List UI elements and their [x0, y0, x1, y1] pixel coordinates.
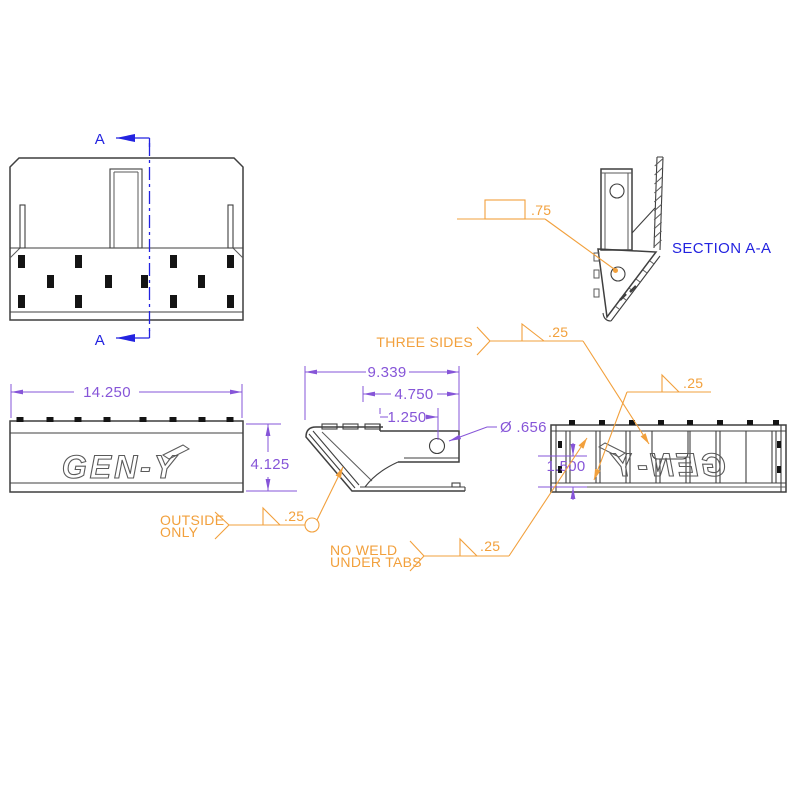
- side-view: [306, 424, 465, 491]
- center-slot: [110, 169, 142, 248]
- front-logo: GEN-Y: [62, 445, 189, 485]
- dim-hole-diameter: Ø .656: [449, 419, 547, 441]
- dim-overall-width-text: 14.250: [83, 384, 131, 401]
- fillet-weld-symbol: [263, 508, 280, 525]
- fillet-weld-symbol: [522, 324, 544, 341]
- three-sides-size: .25: [548, 324, 568, 340]
- upper-hole: [610, 184, 624, 198]
- section-marker-top: A: [95, 131, 105, 148]
- logo-text: GEN-Y: [62, 449, 178, 485]
- left-slot: [20, 205, 25, 248]
- fillet-weld-symbol: [662, 375, 679, 392]
- lower-hole: [611, 267, 625, 281]
- dim-overall-height-text: 4.125: [250, 456, 289, 473]
- dim-hole-offset: 1.250: [380, 408, 438, 440]
- top-view: [10, 158, 243, 320]
- no-weld-size: .25: [480, 538, 500, 554]
- logo-text-mirrored: GEN-Y: [610, 447, 726, 483]
- no-weld-note-line2: UNDER TABS: [330, 554, 422, 570]
- dim-arm-length: 4.750: [363, 386, 459, 403]
- back-logo-mirrored: GEN-Y: [599, 443, 726, 483]
- dim-arm-length-text: 4.750: [394, 386, 433, 403]
- drawing-canvas: A A SECTION A-A .75: [0, 0, 800, 800]
- dim-profile-length-text: 9.339: [367, 364, 406, 381]
- plug-weld-callout: .75: [457, 200, 618, 273]
- section-aa-view: SECTION A-A: [594, 157, 771, 321]
- dim-step-height-text: 1.500: [546, 458, 585, 475]
- engineering-drawing: A A SECTION A-A .75: [0, 0, 800, 800]
- front-view: GEN-Y: [10, 417, 243, 492]
- weld-all-around-symbol: [305, 518, 319, 532]
- three-sides-note: THREE SIDES: [376, 334, 473, 350]
- dim-overall-width: 14.250: [11, 384, 242, 418]
- dim-overall-height: 4.125: [246, 424, 297, 491]
- center-plate-size: .25: [683, 375, 703, 391]
- outside-only-note-line2: ONLY: [160, 524, 199, 540]
- dim-hole-diameter-text: Ø .656: [500, 419, 547, 436]
- pin-hole: [430, 439, 445, 454]
- dim-hole-offset-text: 1.250: [387, 409, 426, 426]
- tab-slots: [18, 255, 234, 308]
- plug-weld-size: .75: [531, 202, 551, 218]
- section-view-label: SECTION A-A: [672, 240, 771, 257]
- plug-weld-symbol: [485, 200, 525, 219]
- section-cut-line: A A: [95, 131, 150, 349]
- fillet-weld-symbol: [460, 539, 477, 556]
- right-slot: [228, 205, 233, 248]
- dim-profile-length: 9.339: [305, 364, 459, 430]
- outside-only-size: .25: [284, 508, 304, 524]
- weld-outside-only: OUTSIDE ONLY .25: [160, 467, 343, 540]
- section-marker-bottom: A: [95, 332, 105, 349]
